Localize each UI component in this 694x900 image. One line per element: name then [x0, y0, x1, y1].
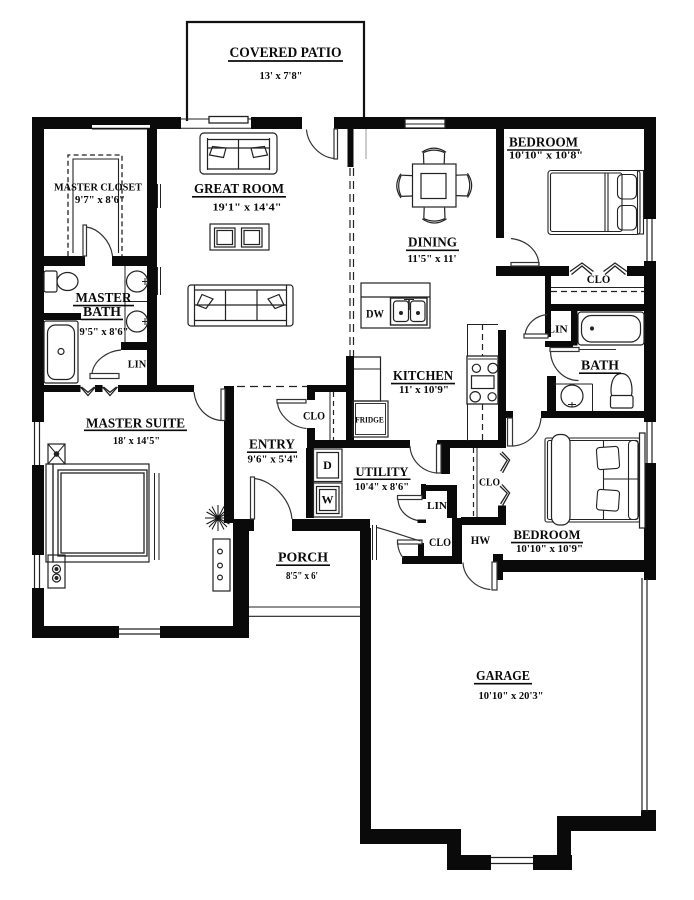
svg-text:ENTRY: ENTRY	[249, 437, 295, 452]
svg-text:11'5" x 11': 11'5" x 11'	[408, 254, 457, 265]
svg-text:BATH: BATH	[83, 304, 122, 319]
svg-text:CLO: CLO	[479, 477, 500, 489]
svg-text:UTILITY: UTILITY	[356, 465, 409, 479]
svg-text:19'1" x 14'4": 19'1" x 14'4"	[213, 202, 282, 214]
svg-text:LIN: LIN	[427, 501, 447, 512]
svg-text:DINING: DINING	[408, 235, 457, 250]
svg-text:MASTER: MASTER	[76, 290, 132, 305]
svg-text:MASTER SUITE: MASTER SUITE	[86, 417, 185, 432]
svg-text:LIN: LIN	[547, 324, 568, 336]
svg-text:BEDROOM: BEDROOM	[514, 527, 581, 542]
svg-text:CLO: CLO	[303, 411, 325, 423]
svg-text:10'4" x 8'6": 10'4" x 8'6"	[355, 482, 409, 493]
svg-text:10'10" x 10'9": 10'10" x 10'9"	[516, 544, 583, 555]
svg-text:BEDROOM: BEDROOM	[509, 135, 578, 150]
svg-text:PORCH: PORCH	[278, 550, 329, 565]
svg-text:GARAGE: GARAGE	[476, 668, 530, 683]
svg-text:FRIDGE: FRIDGE	[355, 416, 384, 425]
svg-text:10'10" x 10'8": 10'10" x 10'8"	[509, 151, 583, 162]
svg-text:HW: HW	[471, 535, 491, 547]
svg-text:9'6" x 5'4": 9'6" x 5'4"	[248, 455, 299, 466]
svg-text:KITCHEN: KITCHEN	[393, 368, 453, 383]
svg-text:CLO: CLO	[587, 274, 611, 286]
svg-text:8'5" x 6': 8'5" x 6'	[286, 571, 318, 582]
svg-text:GREAT ROOM: GREAT ROOM	[194, 181, 284, 196]
svg-text:9'5" x 8'6": 9'5" x 8'6"	[80, 327, 129, 338]
svg-text:W: W	[322, 493, 334, 507]
svg-text:MASTER CLOSET: MASTER CLOSET	[54, 182, 143, 194]
svg-text:D: D	[323, 458, 332, 472]
svg-text:9'7" x 8'6": 9'7" x 8'6"	[75, 195, 125, 206]
svg-text:LIN: LIN	[128, 360, 147, 371]
svg-text:10'10" x 20'3": 10'10" x 20'3"	[479, 691, 544, 702]
svg-text:DW: DW	[366, 307, 384, 321]
svg-text:COVERED PATIO: COVERED PATIO	[230, 45, 342, 61]
svg-text:CLO: CLO	[429, 537, 451, 549]
svg-text:11' x 10'9": 11' x 10'9"	[399, 385, 449, 396]
svg-text:BATH: BATH	[581, 358, 620, 373]
svg-text:18' x 14'5": 18' x 14'5"	[113, 436, 160, 447]
svg-text:13' x 7'8": 13' x 7'8"	[260, 70, 303, 82]
